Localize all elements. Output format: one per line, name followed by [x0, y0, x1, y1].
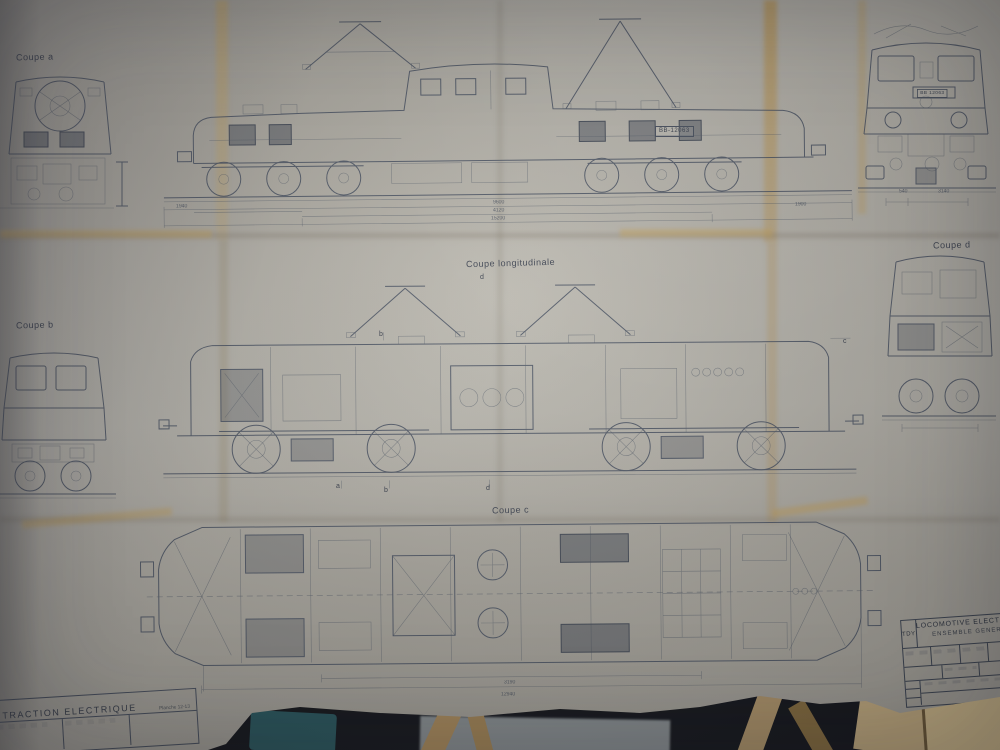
- coupe-d-label: Coupe d: [933, 240, 971, 251]
- section-marker-a-bottom: a: [336, 483, 340, 490]
- side-elevation-drawing: [150, 14, 860, 239]
- footer-cell: [62, 715, 131, 749]
- coupe-b-label: Coupe b: [16, 320, 54, 331]
- blueprint-sheet: Coupe a Coupe b Coupe c Coupe d Coupe lo…: [0, 0, 1000, 750]
- teal-object: [249, 710, 337, 750]
- dimension-value: 540: [899, 189, 908, 194]
- title-block-cell: [903, 647, 932, 667]
- dimension-value: 3140: [938, 189, 949, 194]
- section-marker-b-mid: b: [379, 331, 383, 338]
- longitudinal-section-drawing: [150, 276, 870, 506]
- dimension-value: 1940: [176, 204, 187, 209]
- coupe-d-drawing: [882, 244, 1000, 464]
- coupe-longitudinale-label: Coupe longitudinale: [466, 257, 555, 269]
- front-number-plate: BB 12063: [917, 89, 948, 98]
- section-marker-d-top: d: [480, 274, 484, 281]
- title-block-cell: [931, 645, 960, 665]
- footer-cell: [130, 711, 198, 745]
- drawing-footer-box: TRACTION ELECTRIQUE Planche 12-13: [0, 688, 200, 750]
- title-block-cell: [904, 665, 942, 681]
- title-block-cell: [980, 660, 1000, 676]
- dimension-value: 9600: [493, 200, 504, 205]
- title-block: TDY LOCOMOTIVE ELECTRIQUE ENSEMBLE GENER…: [900, 612, 1000, 708]
- coupe-c-label: Coupe c: [492, 505, 529, 516]
- strap: [788, 700, 834, 750]
- side-number-plate: BB-12063: [655, 126, 694, 137]
- title-block-cell: [988, 641, 1000, 661]
- title-block-cell: [942, 663, 980, 679]
- title-block-revision-column: [905, 681, 922, 706]
- front-view-drawing: [856, 16, 1000, 218]
- dimension-value: 1900: [795, 202, 806, 207]
- coupe-a-label: Coupe a: [16, 52, 54, 63]
- section-marker-b-bottom: b: [384, 487, 388, 494]
- dimension-value: 3190: [504, 680, 515, 685]
- dimension-value: 4120: [493, 208, 504, 213]
- dimension-value: 12940: [501, 692, 515, 697]
- dimension-value: 15200: [491, 216, 505, 221]
- footer-cell: [0, 719, 64, 750]
- photo-of-blueprint: Coupe a Coupe b Coupe c Coupe d Coupe lo…: [0, 0, 1000, 750]
- section-marker-d-bottom: d: [486, 485, 490, 492]
- plan-view-drawing: [140, 506, 880, 701]
- section-marker-c-mid: c: [843, 338, 847, 345]
- coupe-a-drawing: [0, 66, 134, 221]
- coupe-b-drawing: [0, 346, 124, 511]
- title-block-cell: [959, 643, 988, 663]
